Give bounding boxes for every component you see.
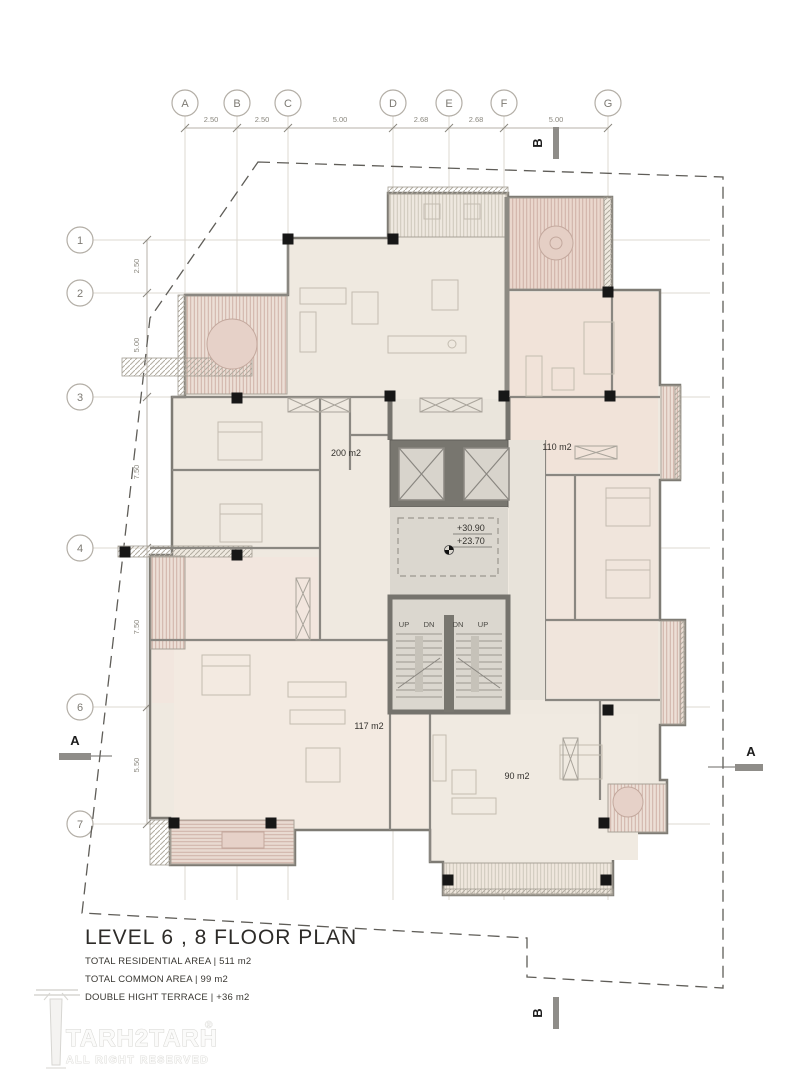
grid-col-f: F — [501, 98, 508, 110]
grid-col-d: D — [389, 98, 397, 110]
grid-row-2: 2 — [77, 288, 83, 300]
stat-terrace-area: DOUBLE HIGHT TERRACE | +36 m2 — [85, 992, 249, 1003]
stair-up-left: UP — [399, 620, 409, 629]
logo-tagline: ALL RIGHT RESERVED — [66, 1054, 209, 1066]
section-marker-b-top: B — [530, 127, 559, 159]
stat-common-area: TOTAL COMMON AREA | 99 m2 — [85, 974, 228, 985]
grid-row-1: 1 — [77, 235, 83, 247]
col-dim-fg: 5.00 — [549, 115, 564, 124]
section-marker-b-bottom: B — [530, 997, 559, 1029]
core-block — [390, 397, 545, 712]
grid-row-7: 7 — [77, 819, 83, 831]
section-b-top-label: B — [530, 138, 545, 147]
col-dim-ef: 2.68 — [469, 115, 484, 124]
grid-row-4: 4 — [77, 543, 83, 555]
stair-up-right: UP — [478, 620, 488, 629]
section-b-bottom-label: B — [530, 1008, 545, 1017]
label-apt-117: 117 m2 — [354, 721, 383, 731]
grid-column-bubbles: A B C D E F G 2.50 2.50 5.00 2.68 2.68 5… — [172, 90, 621, 124]
col-dim-ab: 2.50 — [204, 115, 219, 124]
grid-row-6: 6 — [77, 702, 83, 714]
grid-col-e: E — [445, 98, 452, 110]
section-marker-a-right: A — [708, 744, 763, 771]
grid-col-c: C — [284, 98, 292, 110]
section-marker-a-left: A — [59, 733, 112, 760]
title-block: LEVEL 6 , 8 FLOOR PLAN TOTAL RESIDENTIAL… — [85, 926, 357, 1003]
label-apt-200: 200 m2 — [331, 448, 361, 458]
grid-col-b: B — [233, 98, 240, 110]
row-dim-34: 7.50 — [132, 465, 141, 480]
floor-plan-sheet: A B C D E F G 2.50 2.50 5.00 2.68 2.68 5… — [0, 0, 789, 1080]
grid-col-a: A — [181, 98, 189, 110]
grid-col-g: G — [604, 98, 613, 110]
section-a-right-label: A — [746, 744, 756, 759]
stair-dn-right: DN — [453, 620, 464, 629]
floor-plan-canvas: A B C D E F G 2.50 2.50 5.00 2.68 2.68 5… — [0, 0, 789, 1080]
stair-dn-left: DN — [424, 620, 435, 629]
col-dim-de: 2.68 — [414, 115, 429, 124]
col-dim-cd: 5.00 — [333, 115, 348, 124]
logo-wordmark: TARH2TARH — [66, 1025, 218, 1052]
level-upper: +30.90 — [457, 523, 485, 533]
label-apt-90: 90 m2 — [504, 771, 529, 781]
level-lower: +23.70 — [457, 536, 485, 546]
row-dim-46: 7.50 — [132, 620, 141, 635]
grid-row-3: 3 — [77, 392, 83, 404]
row-dim-67: 5.50 — [132, 758, 141, 773]
stat-residential-area: TOTAL RESIDENTIAL AREA | 511 m2 — [85, 956, 251, 967]
col-dim-bc: 2.50 — [255, 115, 270, 124]
level-symbol-icon — [445, 546, 454, 555]
logo-registered-mark: ® — [205, 1020, 213, 1031]
row-dim-12: 2.50 — [132, 259, 141, 274]
sheet-title: LEVEL 6 , 8 FLOOR PLAN — [85, 926, 357, 949]
label-apt-110: 110 m2 — [542, 442, 571, 452]
row-dim-23: 5.00 — [132, 338, 141, 353]
section-a-left-label: A — [70, 733, 80, 748]
